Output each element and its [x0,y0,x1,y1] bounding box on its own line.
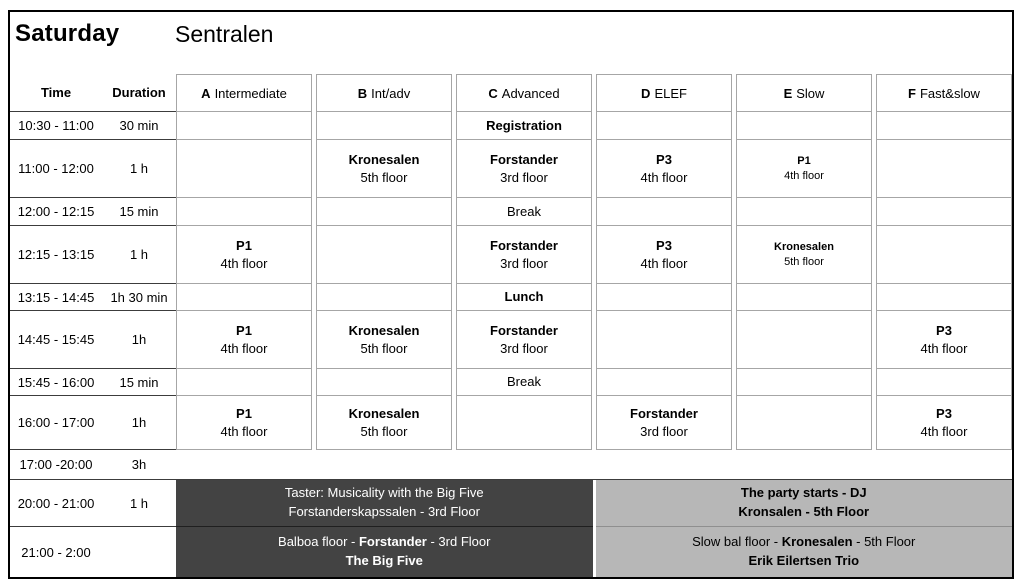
evening-band: Balboa floor - Forstander - 3rd FloorThe… [176,527,1012,577]
party-line: Erik Eilertsen Trio [748,552,859,571]
party-cell-dark: Taster: Musicality with the Big FiveFors… [176,480,593,527]
evening-band: Taster: Musicality with the Big FiveFors… [176,480,1012,527]
row-columns: P14th floorKronesalen5th floorForstander… [176,396,1012,450]
header-row: Time Duration AIntermediateBInt/advCAdva… [10,74,1012,112]
room-floor: 3rd floor [500,255,548,273]
schedule-cell-empty [596,284,732,311]
room-floor: 4th floor [921,423,968,441]
party-cell-light: The party starts - DJKronsalen - 5th Flo… [596,480,1013,527]
schedule-cell-empty [176,112,312,140]
room-floor: 4th floor [784,169,824,184]
duration-header: Duration [102,85,176,100]
room-name: P3 [936,405,952,423]
room-floor: 4th floor [641,255,688,273]
schedule-row: 13:15 - 14:451h 30 minLunch [10,284,1012,311]
column-letter: E [784,86,793,101]
time-cell: 17:00 -20:00 [10,457,102,472]
room-floor: 5th floor [361,340,408,358]
room-floor: 4th floor [221,423,268,441]
schedule-cell-empty [736,311,872,369]
schedule-sheet: Saturday Sentralen Time Duration AInterm… [8,10,1014,579]
schedule-row: 16:00 - 17:001hP14th floorKronesalen5th … [10,396,1012,450]
room-floor: 3rd floor [500,340,548,358]
room-floor: 4th floor [221,255,268,273]
page-title-day: Saturday [15,20,119,48]
schedule-cell: P34th floor [876,396,1012,450]
column-label: Fast&slow [920,86,980,101]
room-name: P1 [236,405,252,423]
room-name: P3 [656,151,672,169]
duration-cell: 1h [102,332,176,347]
schedule-cell: Forstander3rd floor [456,226,592,284]
room-name: Break [507,373,541,391]
schedule-cell-empty [876,198,1012,226]
time-cell: 16:00 - 17:00 [10,415,102,430]
column-label: Intermediate [215,86,287,101]
row-time-left: 17:00 -20:003h [10,450,176,480]
row-columns: P14th floorKronesalen5th floorForstander… [176,311,1012,369]
party-text: - 5th Floor [853,534,916,549]
time-cell: 21:00 - 2:00 [10,545,102,560]
party-text: Taster: Musicality with the Big Five [285,485,484,500]
duration-cell: 3h [102,457,176,472]
schedule-cell-empty [876,226,1012,284]
schedule-cell-empty [876,284,1012,311]
room-floor: 4th floor [221,340,268,358]
row-columns: Kronesalen5th floorForstander3rd floorP3… [176,140,1012,198]
schedule-cell-empty [596,198,732,226]
party-cell-light: Slow bal floor - Kronesalen - 5th FloorE… [596,527,1013,577]
schedule-row: 20:00 - 21:001 hTaster: Musicality with … [10,480,1012,527]
row-time-left: 21:00 - 2:00 [10,527,176,577]
duration-cell: 1h [102,415,176,430]
row-time-left: 16:00 - 17:001h [10,396,176,450]
schedule-cell-empty [456,396,592,450]
room-name: Registration [486,117,562,135]
party-line: The Big Five [346,552,423,571]
column-header-c: CAdvanced [456,74,592,112]
room-floor: 5th floor [784,255,824,270]
schedule-cell: Forstander3rd floor [456,140,592,198]
party-line: Taster: Musicality with the Big Five [285,484,484,503]
schedule-cell: P14th floor [736,140,872,198]
room-name: Break [507,203,541,221]
time-cell: 15:45 - 16:00 [10,375,102,390]
column-label: ELEF [654,86,687,101]
title-row: Saturday Sentralen [10,12,1012,74]
schedule-cell: Break [456,198,592,226]
schedule-row: 21:00 - 2:00Balboa floor - Forstander - … [10,527,1012,577]
time-cell: 20:00 - 21:00 [10,496,102,511]
schedule-cell: Forstander3rd floor [456,311,592,369]
room-name: Forstander [630,405,698,423]
schedule-cell-empty [876,112,1012,140]
row-time-left: 15:45 - 16:0015 min [10,369,176,396]
party-line: Balboa floor - Forstander - 3rd Floor [278,533,490,552]
room-name: Kronesalen [349,151,420,169]
schedule-cell: P34th floor [596,140,732,198]
schedule-cell-empty [596,369,732,396]
duration-cell: 15 min [102,375,176,390]
schedule-cell-empty [876,369,1012,396]
time-cell: 14:45 - 15:45 [10,332,102,347]
schedule-row: 11:00 - 12:001 hKronesalen5th floorForst… [10,140,1012,198]
room-name: P1 [236,322,252,340]
column-header-e: ESlow [736,74,872,112]
duration-cell: 1 h [102,496,176,511]
row-columns: P14th floorForstander3rd floorP34th floo… [176,226,1012,284]
party-text: - 3rd Floor [427,534,491,549]
row-time-left: 12:00 - 12:1515 min [10,198,176,226]
party-line: Kronsalen - 5th Floor [738,503,869,522]
party-cell-dark: Balboa floor - Forstander - 3rd FloorThe… [176,527,593,577]
column-header-f: FFast&slow [876,74,1012,112]
room-floor: 4th floor [921,340,968,358]
schedule-cell-empty [316,112,452,140]
duration-cell: 1 h [102,161,176,176]
room-name: P3 [936,322,952,340]
schedule-cell: Break [456,369,592,396]
room-floor: 4th floor [641,169,688,187]
column-letter: F [908,86,916,101]
schedule-cell-empty [176,284,312,311]
room-floor: 5th floor [361,423,408,441]
schedule-row: 15:45 - 16:0015 minBreak [10,369,1012,396]
time-cell: 11:00 - 12:00 [10,161,102,176]
schedule-cell-empty [316,198,452,226]
party-text: The party starts - DJ [741,485,867,500]
schedule-cell: P14th floor [176,226,312,284]
schedule-cell: Kronesalen5th floor [316,311,452,369]
row-time-left: 12:15 - 13:151 h [10,226,176,284]
party-text: Forstander [359,534,427,549]
row-time-left: 14:45 - 15:451h [10,311,176,369]
schedule-cell-empty [176,198,312,226]
schedule-cell-empty [736,396,872,450]
time-cell: 10:30 - 11:00 [10,118,102,133]
schedule-cell: Kronesalen5th floor [316,396,452,450]
party-text: Erik Eilertsen Trio [748,553,859,568]
duration-cell: 1h 30 min [102,290,176,305]
room-name: Kronesalen [349,322,420,340]
column-header-b: BInt/adv [316,74,452,112]
column-header-a: AIntermediate [176,74,312,112]
room-name: Forstander [490,322,558,340]
time-cell: 12:15 - 13:15 [10,247,102,262]
time-cell: 13:15 - 14:45 [10,290,102,305]
column-letter: D [641,86,650,101]
schedule-cell-empty [176,140,312,198]
time-header: Time [10,85,102,100]
party-text: The Big Five [346,553,423,568]
schedule-cell: P34th floor [876,311,1012,369]
party-text: Kronesalen [782,534,853,549]
schedule-row: 14:45 - 15:451hP14th floorKronesalen5th … [10,311,1012,369]
column-headers: AIntermediateBInt/advCAdvancedDELEFESlow… [176,74,1012,112]
party-line: The party starts - DJ [741,484,867,503]
column-label: Advanced [502,86,560,101]
empty-span [176,450,1012,480]
schedule-cell: Lunch [456,284,592,311]
column-header-d: DELEF [596,74,732,112]
room-name: Kronesalen [349,405,420,423]
party-text: Slow bal floor - [692,534,782,549]
row-time-left: 10:30 - 11:0030 min [10,112,176,140]
column-label: Int/adv [371,86,410,101]
schedule-cell: P14th floor [176,311,312,369]
room-name: P3 [656,237,672,255]
duration-cell: 30 min [102,118,176,133]
column-letter: B [358,86,367,101]
column-letter: C [488,86,497,101]
party-text: Kronsalen - 5th Floor [738,504,869,519]
schedule-cell-empty [596,112,732,140]
room-floor: 3rd floor [500,169,548,187]
party-text: Forstanderskapssalen - 3rd Floor [289,504,480,519]
row-time-left: 11:00 - 12:001 h [10,140,176,198]
room-name: P1 [236,237,252,255]
schedule-row: 12:15 - 13:151 hP14th floorForstander3rd… [10,226,1012,284]
schedule-cell-empty [736,284,872,311]
schedule-cell-empty [176,369,312,396]
schedule-cell: Kronesalen5th floor [736,226,872,284]
schedule-row: 10:30 - 11:0030 minRegistration [10,112,1012,140]
schedule-row: 17:00 -20:003h [10,450,1012,480]
column-letter: A [201,86,210,101]
schedule-cell-empty [736,112,872,140]
room-name: Kronesalen [774,240,834,255]
schedule-cell: P14th floor [176,396,312,450]
room-name: P1 [797,154,810,169]
room-name: Forstander [490,237,558,255]
row-time-left: 20:00 - 21:001 h [10,480,176,527]
room-floor: 5th floor [361,169,408,187]
duration-cell: 15 min [102,204,176,219]
duration-cell: 1 h [102,247,176,262]
column-label: Slow [796,86,824,101]
room-floor: 3rd floor [640,423,688,441]
schedule-cell-empty [316,284,452,311]
row-columns: Break [176,369,1012,396]
schedule-cell: Kronesalen5th floor [316,140,452,198]
schedule-cell-empty [876,140,1012,198]
schedule-cell-empty [736,198,872,226]
room-name: Lunch [505,288,544,306]
time-cell: 12:00 - 12:15 [10,204,102,219]
schedule-body: 10:30 - 11:0030 minRegistration11:00 - 1… [10,112,1012,577]
schedule-cell: Forstander3rd floor [596,396,732,450]
schedule-row: 12:00 - 12:1515 minBreak [10,198,1012,226]
schedule-cell-empty [596,311,732,369]
room-name: Forstander [490,151,558,169]
schedule-cell-empty [316,369,452,396]
schedule-cell-empty [316,226,452,284]
party-line: Forstanderskapssalen - 3rd Floor [289,503,480,522]
row-time-left: 13:15 - 14:451h 30 min [10,284,176,311]
schedule-cell: P34th floor [596,226,732,284]
row-columns: Break [176,198,1012,226]
party-line: Slow bal floor - Kronesalen - 5th Floor [692,533,915,552]
row-columns: Lunch [176,284,1012,311]
row-columns: Registration [176,112,1012,140]
schedule-cell: Registration [456,112,592,140]
page-title-venue: Sentralen [175,21,273,48]
schedule-cell-empty [736,369,872,396]
header-left: Time Duration [10,74,176,112]
party-text: Balboa floor - [278,534,359,549]
